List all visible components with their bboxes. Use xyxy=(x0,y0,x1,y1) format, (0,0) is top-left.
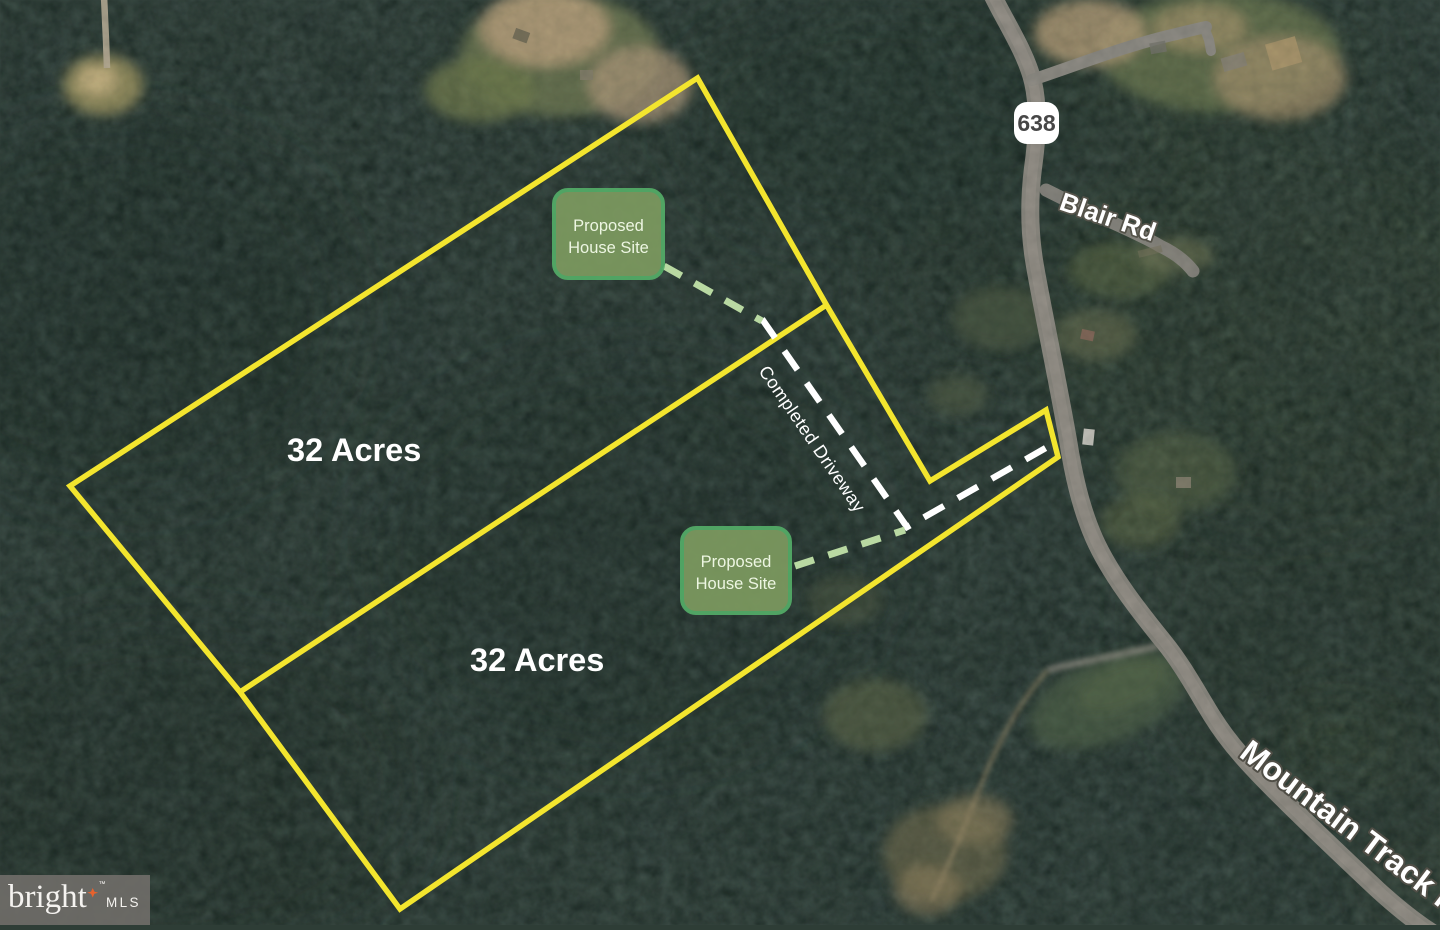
svg-text:House Site: House Site xyxy=(568,239,649,257)
svg-text:32 Acres: 32 Acres xyxy=(287,432,421,468)
svg-text:MLS: MLS xyxy=(106,895,141,910)
svg-text:32 Acres: 32 Acres xyxy=(470,642,604,678)
svg-text:Proposed: Proposed xyxy=(573,217,644,235)
svg-text:638: 638 xyxy=(1017,110,1056,136)
svg-text:House Site: House Site xyxy=(696,575,777,593)
svg-text:bright: bright xyxy=(8,879,87,915)
svg-text:Proposed: Proposed xyxy=(701,553,772,571)
svg-text:™: ™ xyxy=(99,881,106,888)
